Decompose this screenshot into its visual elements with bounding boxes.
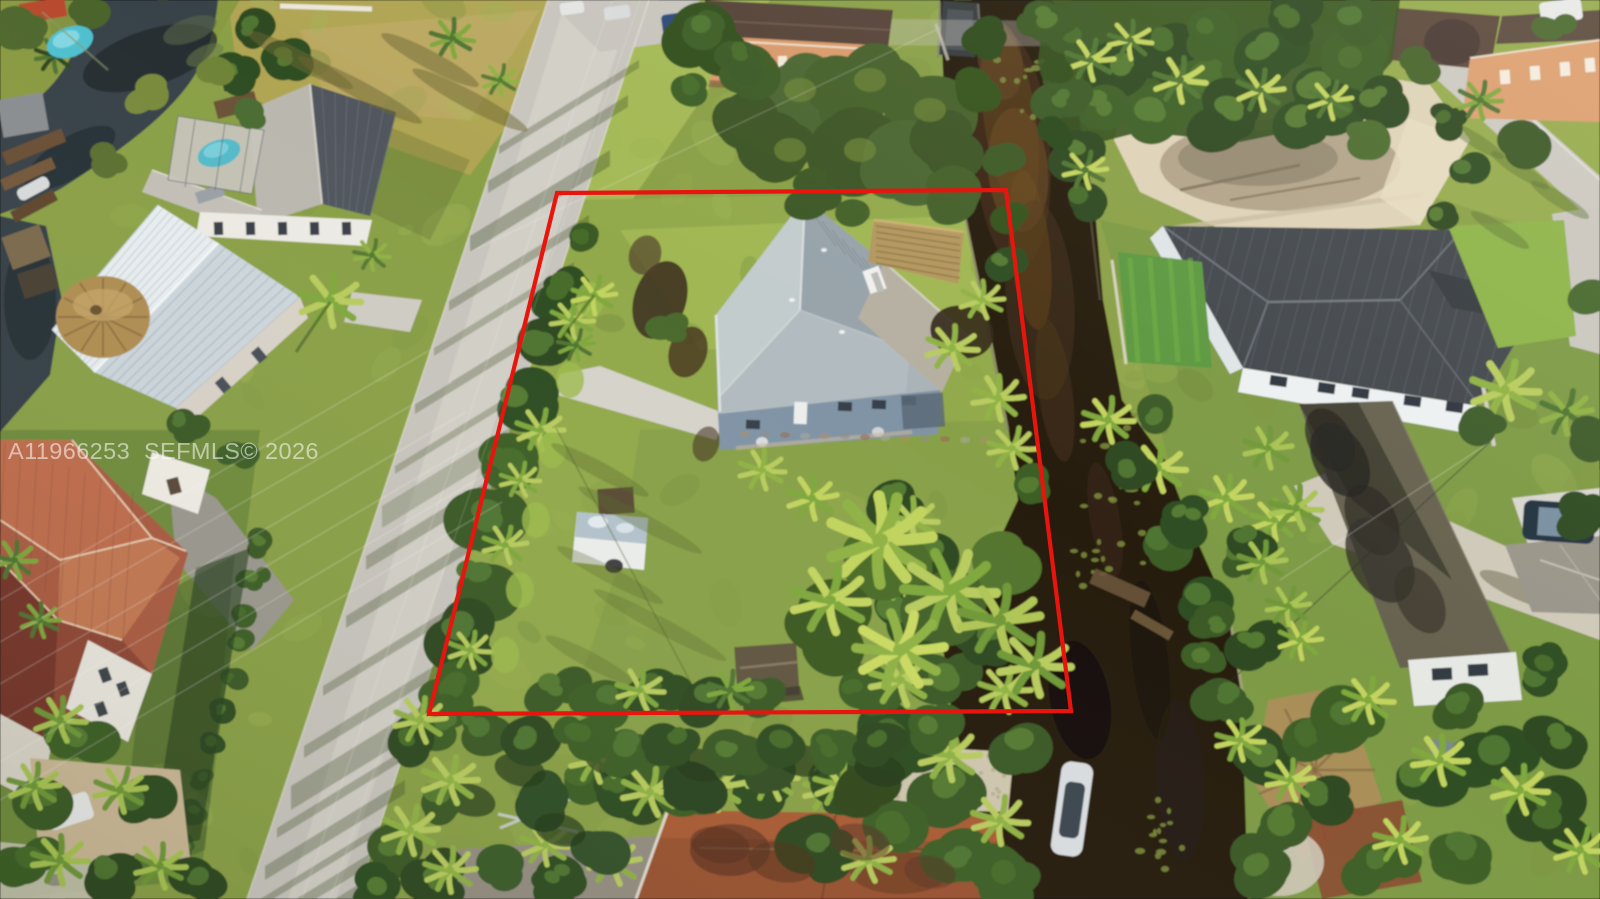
svg-text:A11966253 SEFMLS© 2026: A11966253 SEFMLS© 2026 [8, 438, 319, 464]
